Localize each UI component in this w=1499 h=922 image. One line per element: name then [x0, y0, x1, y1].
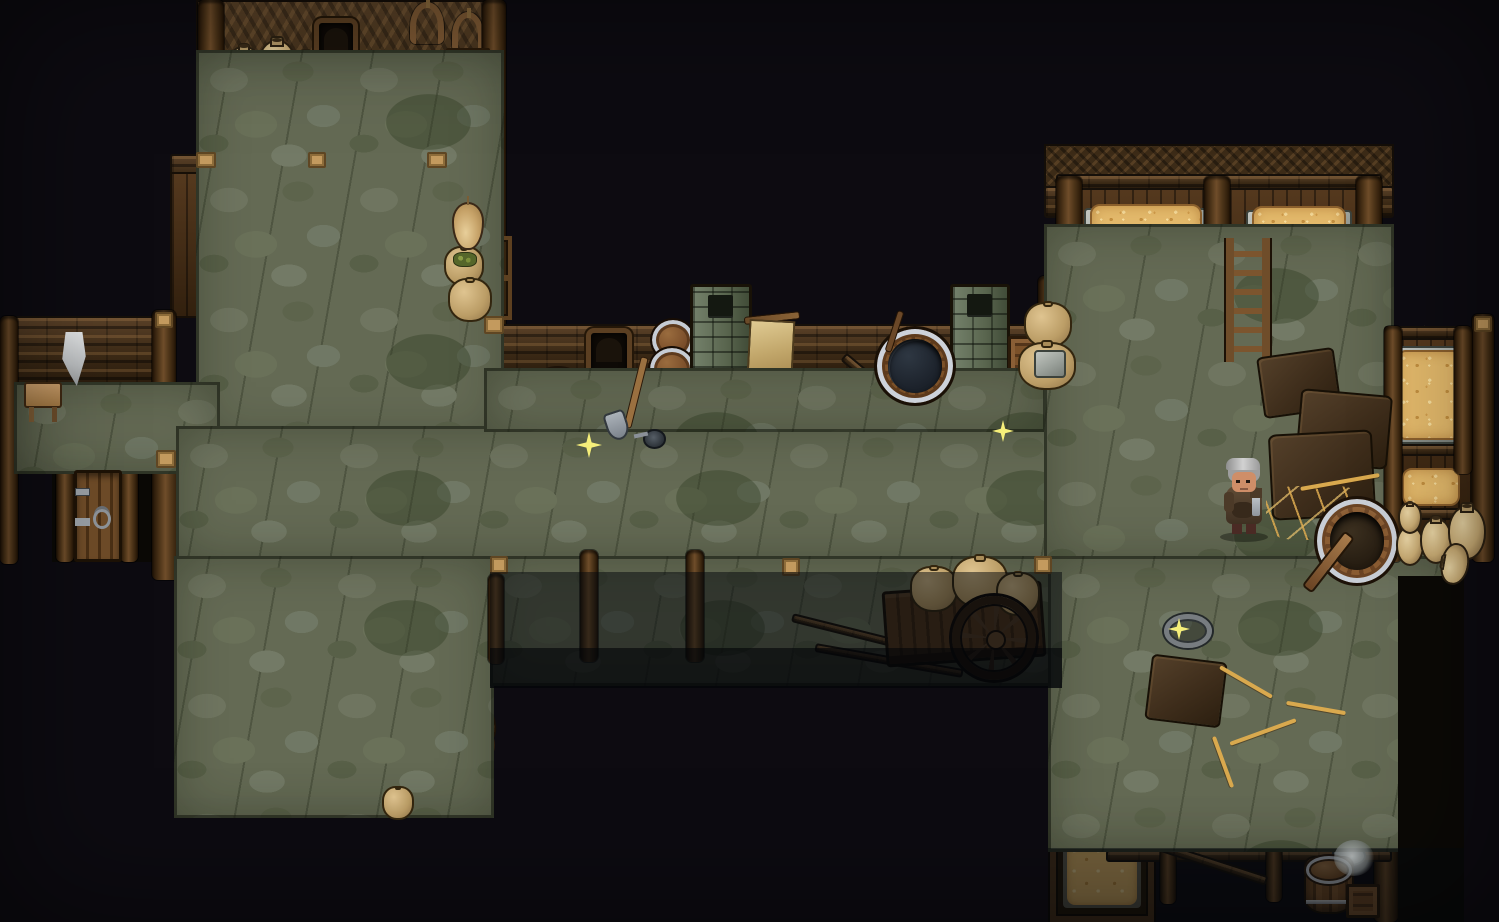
- box-small: [1346, 884, 1380, 918]
- sack-grain: [448, 278, 492, 322]
- cap-inner-1: [196, 152, 216, 168]
- npc-arm-left: [1224, 492, 1234, 512]
- post-shade-2: [686, 550, 704, 662]
- horseshoe-hook-2: [452, 12, 484, 52]
- game-viewport[interactable]: [0, 0, 1499, 922]
- cap-shade-left: [490, 556, 508, 574]
- npc-eye-right: [1246, 480, 1250, 483]
- cap-inner-3: [427, 152, 447, 168]
- cap-door-post: [156, 450, 176, 468]
- right-bunk-post-right: [1454, 326, 1472, 474]
- npc-hair-top: [1226, 458, 1260, 470]
- right-bunk-hay-top: [1396, 350, 1462, 440]
- cap-right-edge: [1474, 316, 1492, 332]
- dust-puff: [1334, 840, 1374, 876]
- cap-inner-2: [308, 152, 326, 168]
- npc-mouth: [1240, 488, 1248, 490]
- tarp-4: [1144, 654, 1227, 729]
- vat-water: [874, 326, 956, 406]
- cloth-gray-1: [1034, 350, 1066, 378]
- cart: [790, 552, 1066, 692]
- floor-central-room: [484, 368, 1046, 432]
- tub-paddle: [1314, 496, 1400, 586]
- post-shade-1: [580, 550, 598, 662]
- dark-corner-bottomright: [1398, 576, 1464, 922]
- npc-robe-patch: [1232, 502, 1254, 518]
- item-ring[interactable]: [1164, 614, 1212, 648]
- sack-floor: [382, 786, 414, 820]
- pan-item[interactable]: [634, 424, 666, 448]
- cap-left-arm: [155, 312, 173, 328]
- post-shade-0: [488, 574, 504, 664]
- stool: [24, 382, 62, 422]
- npc-shadow: [1220, 532, 1268, 542]
- ladder: [1226, 238, 1270, 362]
- pot-4: [1398, 502, 1422, 534]
- cart-sack-1: [910, 566, 958, 612]
- horseshoe-hook-1: [410, 2, 444, 44]
- cellar-door[interactable]: [74, 470, 122, 562]
- cap-topleft-east: [484, 316, 504, 334]
- cart-wheel: [952, 596, 1036, 680]
- npc-old-man[interactable]: [1218, 458, 1270, 544]
- floor-bottomleft-room: [174, 556, 494, 818]
- npc-eye-left: [1236, 480, 1240, 483]
